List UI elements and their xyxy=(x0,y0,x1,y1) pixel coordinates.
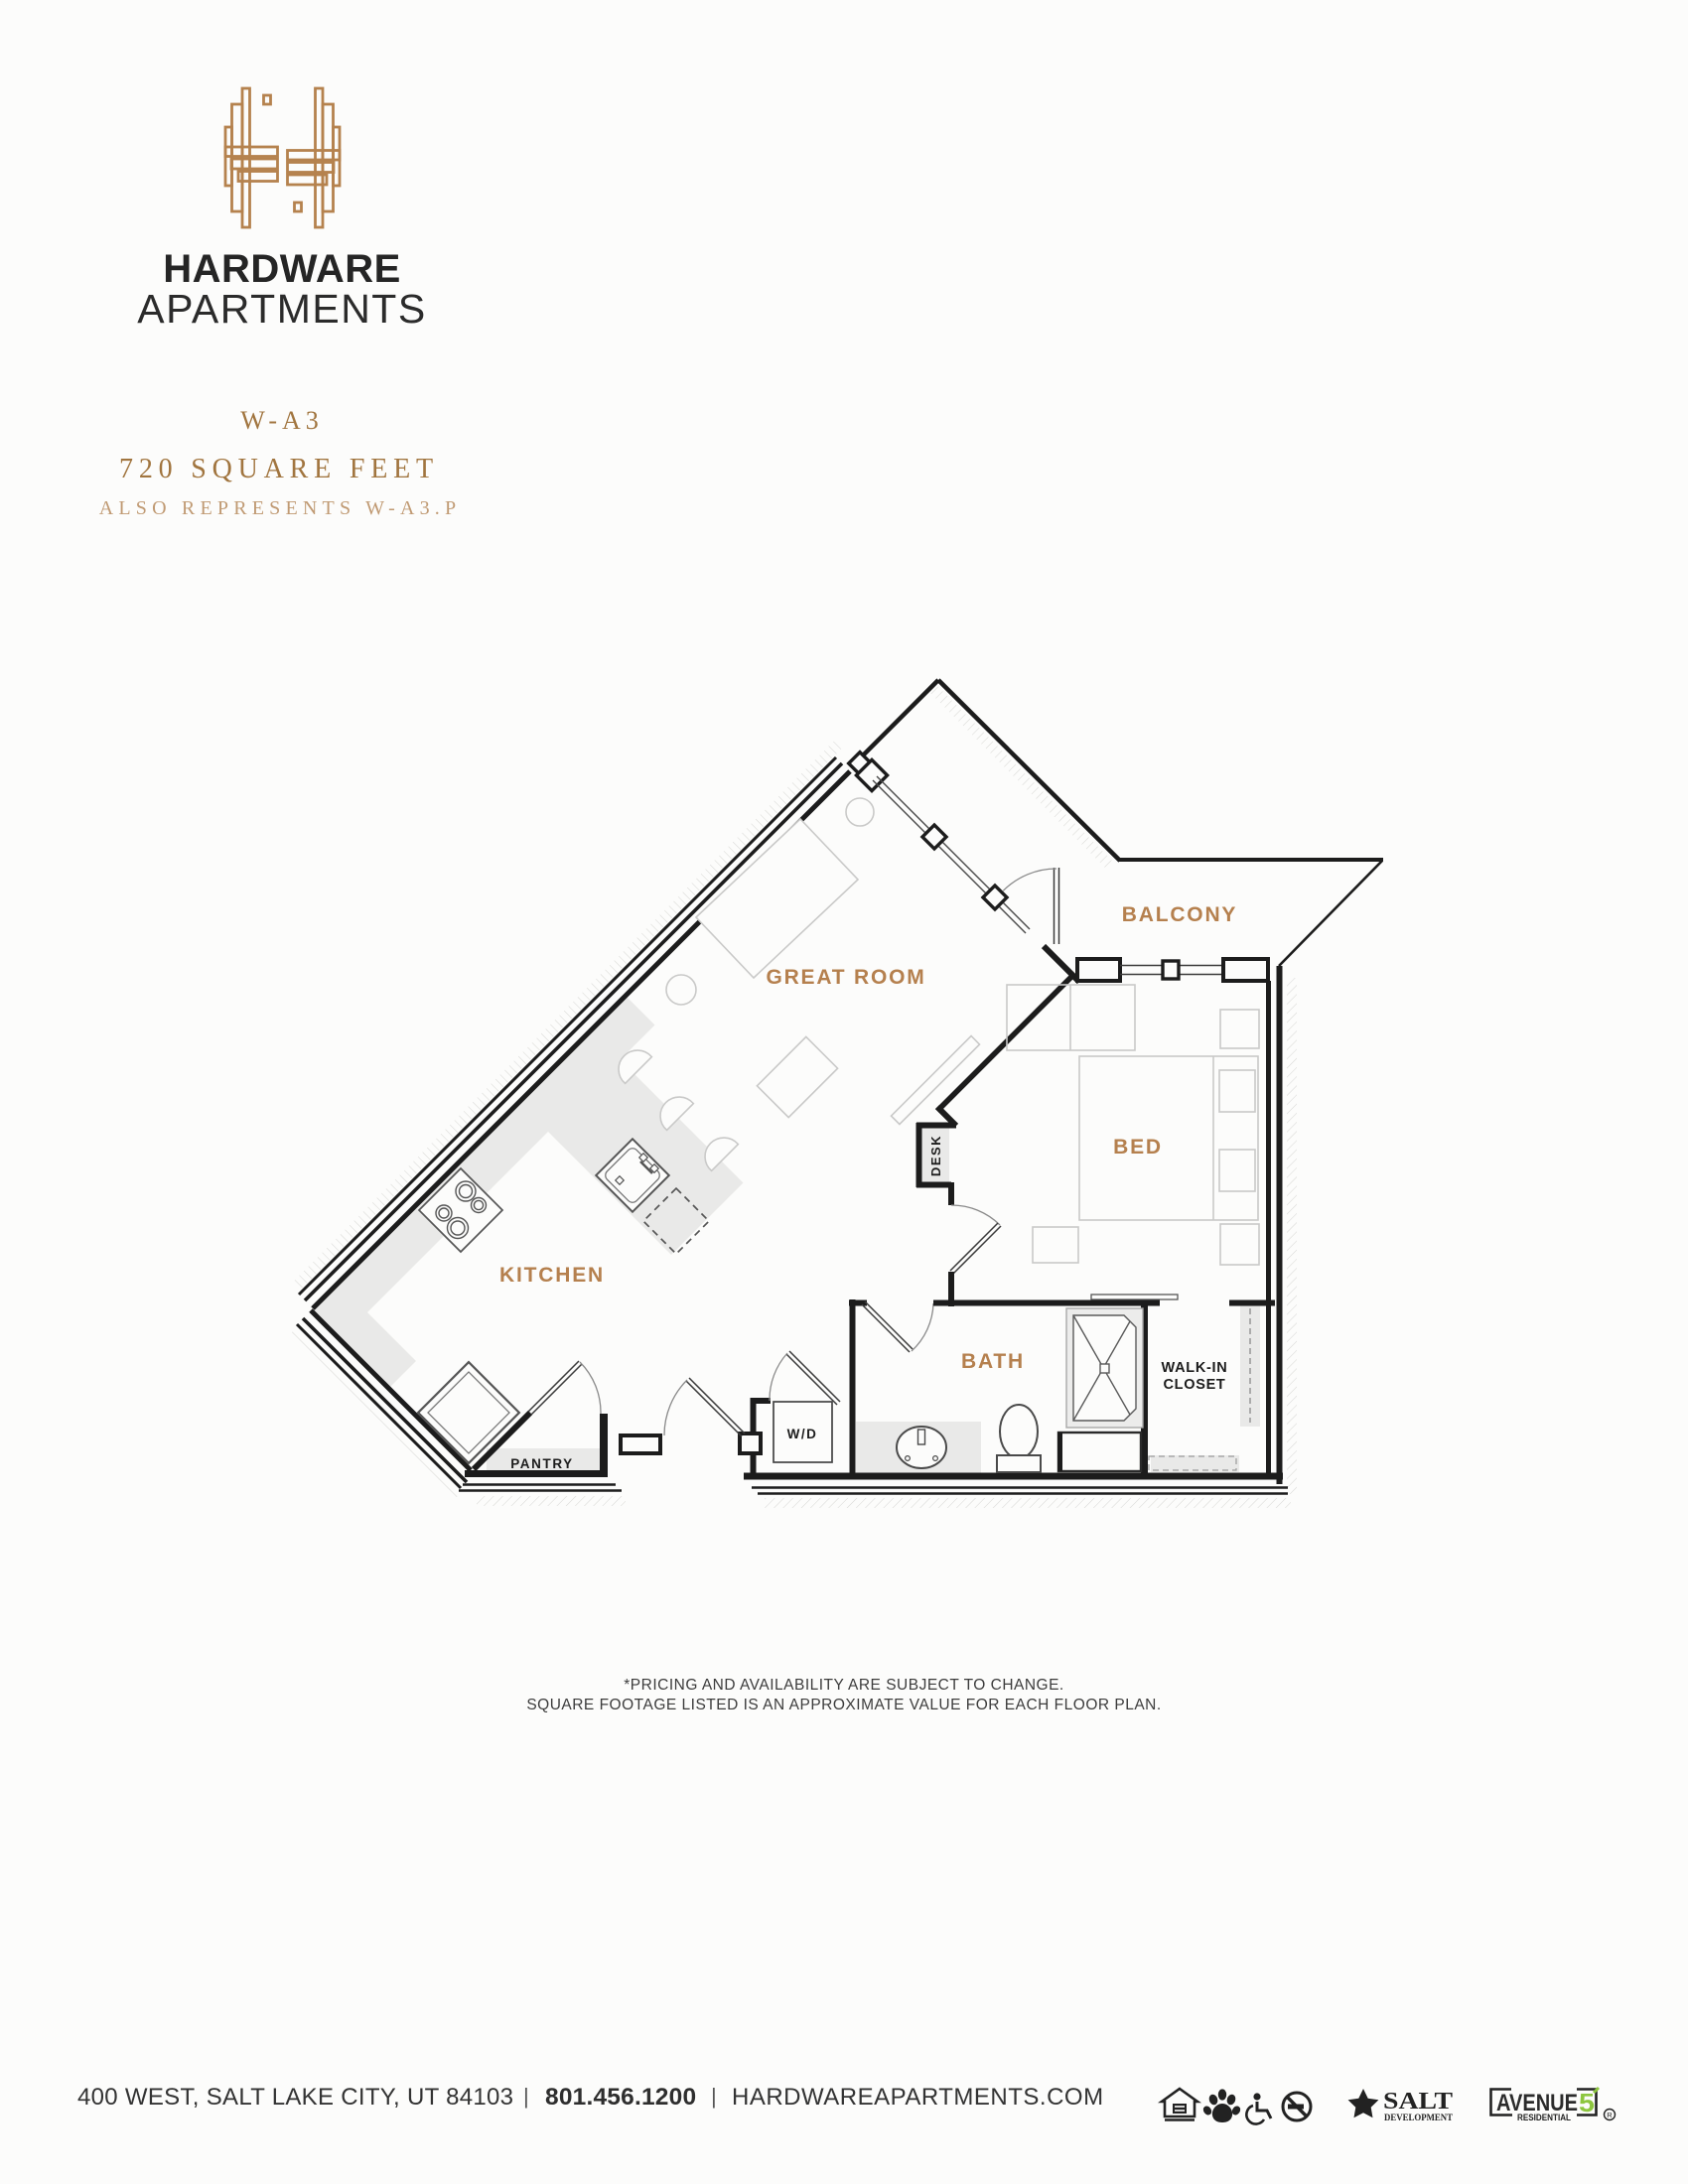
svg-text:SQUARE FOOTAGE LISTED IS AN AP: SQUARE FOOTAGE LISTED IS AN APPROXIMATE … xyxy=(526,1697,1161,1713)
svg-text:WALK-IN: WALK-IN xyxy=(1162,1360,1228,1376)
svg-text:HARDWARE: HARDWARE xyxy=(163,247,401,291)
svg-text:BATH: BATH xyxy=(961,1350,1025,1373)
svg-text:|: | xyxy=(711,2084,717,2109)
svg-text:GREAT ROOM: GREAT ROOM xyxy=(766,966,925,989)
svg-text:DESK: DESK xyxy=(928,1135,943,1176)
svg-text:720 SQUARE FEET: 720 SQUARE FEET xyxy=(119,454,439,484)
svg-text:RESIDENTIAL: RESIDENTIAL xyxy=(1517,2113,1571,2122)
svg-text:BED: BED xyxy=(1113,1136,1163,1159)
svg-text:5: 5 xyxy=(1579,2088,1595,2117)
svg-text:BALCONY: BALCONY xyxy=(1122,903,1237,926)
svg-text:400 WEST, SALT LAKE CITY, UT 8: 400 WEST, SALT LAKE CITY, UT 84103 xyxy=(77,2084,513,2111)
svg-text:CLOSET: CLOSET xyxy=(1163,1377,1225,1393)
svg-text:HARDWAREAPARTMENTS.COM: HARDWAREAPARTMENTS.COM xyxy=(732,2084,1104,2111)
svg-text:SALT: SALT xyxy=(1383,2089,1453,2115)
svg-text:W-A3: W-A3 xyxy=(240,406,324,435)
svg-text:|: | xyxy=(523,2084,529,2109)
svg-text:ALSO REPRESENTS W-A3.P: ALSO REPRESENTS W-A3.P xyxy=(99,497,462,519)
svg-text:KITCHEN: KITCHEN xyxy=(499,1264,605,1287)
svg-text:W/D: W/D xyxy=(787,1427,818,1441)
svg-text:*PRICING AND AVAILABILITY ARE: *PRICING AND AVAILABILITY ARE SUBJECT TO… xyxy=(624,1677,1064,1694)
svg-text:801.456.1200: 801.456.1200 xyxy=(545,2084,696,2111)
svg-text:APARTMENTS: APARTMENTS xyxy=(137,286,426,332)
svg-text:PANTRY: PANTRY xyxy=(510,1456,574,1471)
svg-text:DEVELOPMENT: DEVELOPMENT xyxy=(1384,2113,1453,2122)
svg-text:R: R xyxy=(1607,2111,1613,2119)
